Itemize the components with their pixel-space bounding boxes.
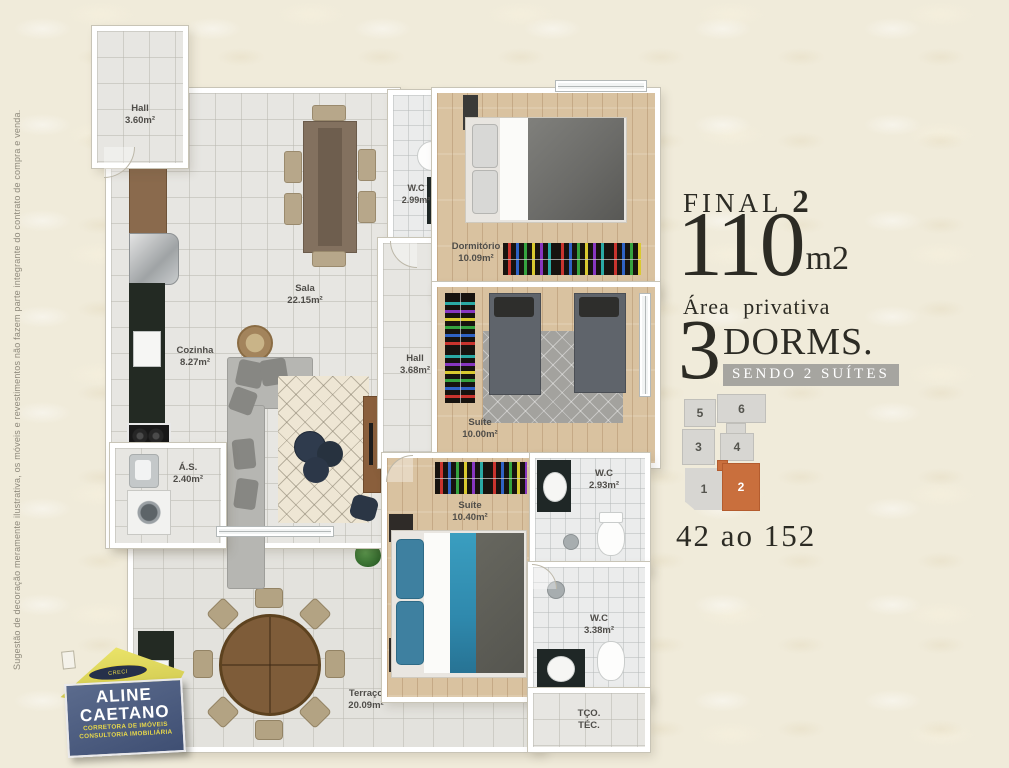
- wardrobe: [445, 293, 475, 403]
- side-table: [237, 325, 273, 361]
- unit-block-1: 1: [685, 468, 723, 510]
- terrace-chair: [255, 588, 283, 608]
- vanity: [537, 460, 571, 512]
- bed-sheet: [500, 118, 528, 220]
- vanity-sink: [547, 656, 575, 682]
- bed-runner: [450, 533, 476, 673]
- glass-door: [216, 526, 334, 537]
- unit-block-4: 4: [721, 434, 753, 460]
- bed-single: [489, 293, 541, 395]
- bed-blanket: [476, 533, 524, 673]
- room-label-dormitorio: Dormitório 10.09m²: [437, 241, 515, 266]
- vanity-sink: [543, 472, 567, 502]
- floor-plan: Terraço 20.09m²: [88, 23, 650, 745]
- room-label-cozinha: Cozinha 8.27m²: [153, 345, 237, 370]
- unit-block-4-tab: [727, 424, 745, 434]
- room-suite-1: Suíte 10.00m²: [432, 282, 660, 468]
- room-label-hall-entry: Hall 3.60m²: [97, 103, 183, 128]
- fridge: [129, 233, 179, 285]
- pillow: [472, 124, 498, 168]
- area-headline: 110m2: [677, 207, 849, 282]
- dining-chair: [312, 105, 346, 121]
- wardrobe: [435, 462, 527, 494]
- room-label-wc-suite: W.C 2.93m²: [567, 468, 641, 493]
- terrace-chair: [255, 720, 283, 740]
- terrace-chair: [193, 650, 213, 678]
- dorms-block: 3 DORMS. SENDO 2 SUÍTES: [678, 315, 899, 386]
- unit-block-6: 6: [718, 395, 765, 422]
- unit-block-3: 3: [683, 430, 714, 464]
- units-range: 42 ao 152: [676, 518, 816, 554]
- toilet: [597, 520, 625, 556]
- room-wc-suite: W.C 2.93m²: [530, 453, 650, 572]
- shower-head-icon: [563, 534, 579, 550]
- dining-table: [303, 121, 357, 253]
- room-suite-2: Suíte 10.40m²: [382, 453, 547, 702]
- toilet-tank: [599, 512, 623, 523]
- room-label-area-servico: Á.S. 2.40m²: [159, 462, 217, 487]
- throw-pillow: [233, 478, 259, 511]
- bed-sheet: [424, 533, 452, 673]
- terrace-chair: [325, 650, 345, 678]
- dorms-number: 3: [678, 315, 721, 384]
- window: [555, 80, 647, 92]
- pillow: [579, 297, 619, 317]
- wardrobe: [503, 243, 641, 275]
- area-unit: m2: [806, 240, 849, 277]
- laundry-tank: [129, 454, 159, 488]
- pillow: [396, 601, 424, 665]
- round-dining-table: [219, 614, 321, 716]
- room-label-suite-2: Suíte 10.40m²: [425, 500, 515, 525]
- logo-body: ALINE CAETANO CORRETORA DE IMÓVEIS CONSU…: [64, 678, 186, 758]
- bed-double: [391, 530, 527, 678]
- unit-block-5: 5: [685, 400, 715, 426]
- dining-chair: [312, 251, 346, 267]
- logo-chimney-icon: [61, 650, 76, 669]
- room-label-sala: Sala 22.15m²: [259, 283, 351, 308]
- room-label-wc-terraco: W.C 3.38m²: [559, 613, 639, 638]
- pillow: [472, 170, 498, 214]
- disclaimer-text: Sugestão de decoração meramente ilustrat…: [12, 80, 28, 670]
- pillow: [396, 539, 424, 599]
- throw-pillow: [231, 438, 256, 470]
- dining-chair: [358, 149, 376, 181]
- room-tco-tec: TÇO. TÉC.: [528, 688, 650, 752]
- room-area-servico: Á.S. 2.40m²: [110, 443, 226, 548]
- dining-chair: [284, 193, 302, 225]
- pillow: [494, 297, 534, 317]
- area-number: 110: [677, 193, 803, 295]
- room-label-tco-tec: TÇO. TÉC.: [578, 708, 601, 733]
- tv: [369, 423, 373, 465]
- vanity: [537, 649, 585, 687]
- bed-double: [465, 117, 627, 223]
- terrace-chair: [206, 597, 240, 631]
- kitchen-cabinet: [129, 157, 167, 235]
- agency-logo: CRECI ALINE CAETANO CORRETORA DE IMÓVEIS…: [56, 645, 194, 763]
- window: [639, 293, 651, 397]
- dorms-label: DORMS.: [723, 323, 899, 361]
- dining-chair: [358, 191, 376, 223]
- room-label-suite-1: Suíte 10.00m²: [437, 417, 523, 442]
- unit-block-2-highlighted: 2: [723, 464, 759, 510]
- bed-single: [574, 293, 626, 393]
- flyer: Sugestão de decoração meramente ilustrat…: [0, 0, 1009, 768]
- room-dormitorio: Dormitório 10.09m²: [432, 88, 660, 298]
- suites-banner: SENDO 2 SUÍTES: [723, 364, 899, 386]
- washing-machine: [127, 490, 171, 535]
- dining-chair: [284, 151, 302, 183]
- toilet: [597, 641, 625, 681]
- unit-position-map: 5 6 3 4 1 2: [681, 392, 771, 518]
- coffee-table: [303, 457, 329, 483]
- bed-blanket: [528, 118, 624, 220]
